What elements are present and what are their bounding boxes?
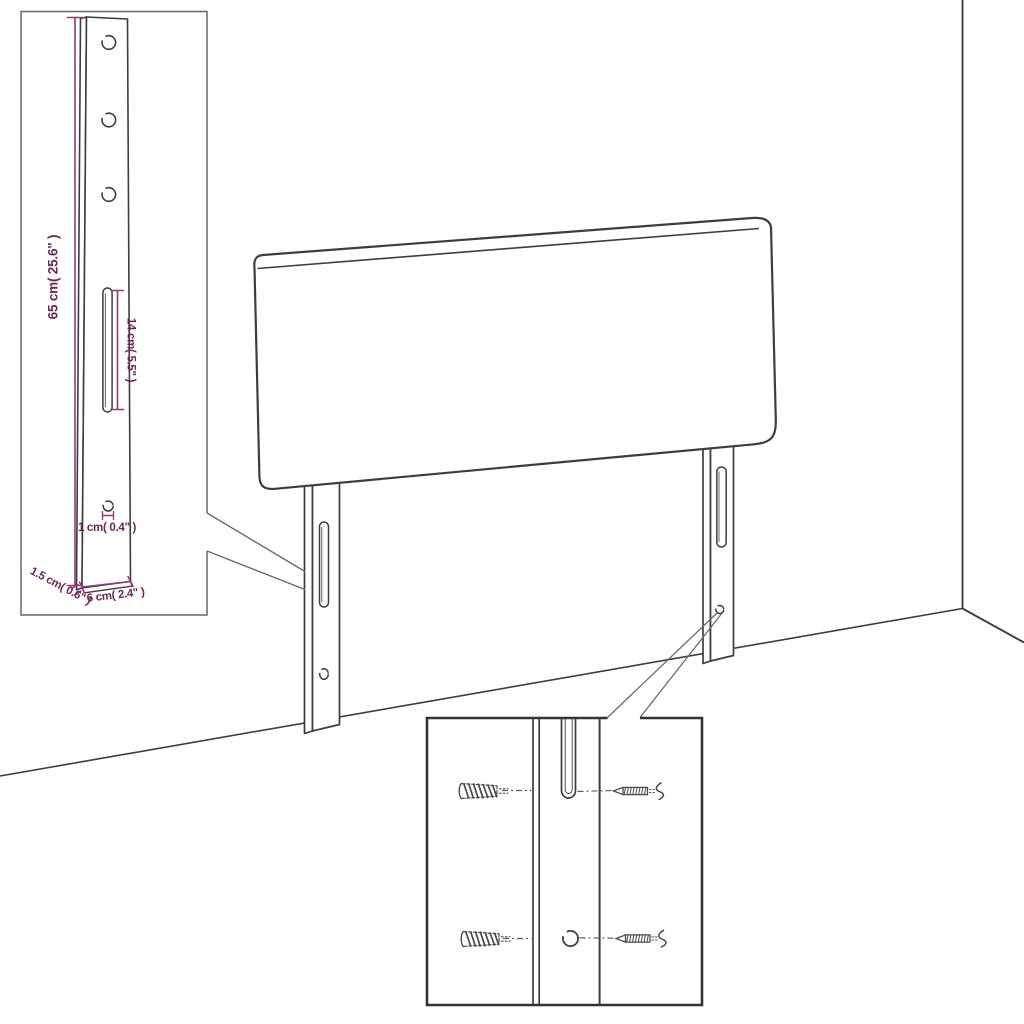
bracket-slot [103,288,112,412]
mounting-slot [562,718,576,798]
mounting-detail-inset [427,718,702,1005]
callout-line [207,513,305,572]
callout-line [608,613,718,718]
leg-closeup-drawing [533,718,600,1005]
inset-border [427,718,702,1005]
left-leg [305,471,340,734]
wall-plug-illustration [461,931,510,946]
callout-wedge-bracket [207,513,305,590]
mounting-hole [563,931,578,946]
screw-illustration [614,783,664,800]
callout-line [207,551,305,590]
screw-illustration [616,930,666,947]
headboard-panel [254,218,776,489]
headboard-outline [254,218,776,489]
bracket-hole [102,188,116,202]
dimension-label-slot: 14 cm( 5.5" ) [125,318,137,383]
callout-line [640,613,722,717]
bracket-small-hole [103,501,113,511]
right-leg [703,439,734,664]
leg-edge-lines [533,718,539,1005]
leg-slot [717,467,726,547]
leader-line [578,791,613,792]
leg-slot [320,522,329,607]
dimension-label-height: 65 cm( 25.6" ) [46,235,61,320]
left-leg-side-face [305,473,313,734]
product-diagram-headboard: 65 cm( 25.6" ) 14 cm( 5.5" ) 1 cm( 0.4" … [0,0,1024,1024]
bracket-detail-inset: 65 cm( 25.6" ) 14 cm( 5.5" ) 1 cm( 0.4" … [21,12,207,616]
floor-line-left [0,609,963,777]
bracket-hole [102,113,116,127]
mounting-slot-inner-line [565,718,572,794]
leader-lines [502,791,614,939]
bracket-drawing [77,17,134,593]
leg-hole [320,669,329,680]
wall-plug-illustration [459,783,508,798]
dimension-label-hole: 1 cm( 0.4" ) [78,522,137,534]
floor-line-right [963,609,1024,643]
bracket-hole [102,36,116,50]
